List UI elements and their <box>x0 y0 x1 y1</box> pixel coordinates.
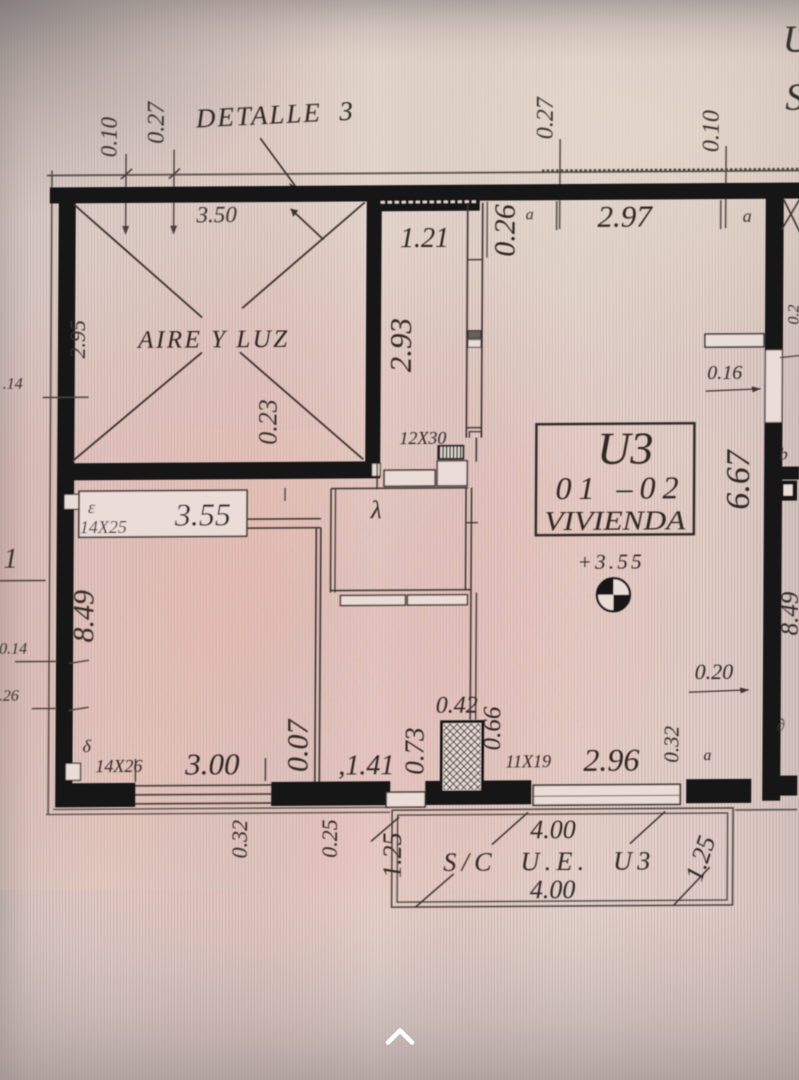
svg-text:U: U <box>783 18 799 60</box>
svg-text:λ: λ <box>370 497 382 524</box>
svg-text:6.67: 6.67 <box>720 448 757 510</box>
svg-text:ε: ε <box>88 497 96 517</box>
svg-text:VIVIENDA: VIVIENDA <box>544 505 686 536</box>
svg-text:0.23: 0.23 <box>253 399 282 445</box>
svg-text:0.07: 0.07 <box>281 717 314 772</box>
svg-text:0.10: 0.10 <box>699 110 725 152</box>
svg-text:4.00: 4.00 <box>530 815 576 844</box>
svg-text:0.73: 0.73 <box>400 727 430 774</box>
svg-text:δ: δ <box>82 736 91 756</box>
svg-text:0.25: 0.25 <box>317 819 342 858</box>
svg-text:,1.41: ,1.41 <box>338 750 394 781</box>
svg-text:2.95: 2.95 <box>65 320 90 359</box>
svg-text:0.32: 0.32 <box>659 725 683 762</box>
svg-text:11X19: 11X19 <box>505 751 551 771</box>
svg-text:∂: ∂ <box>777 716 786 735</box>
svg-text:a: a <box>703 747 711 764</box>
svg-text:b: b <box>779 445 788 464</box>
svg-text:a: a <box>526 206 534 223</box>
svg-text:4.00: 4.00 <box>530 875 576 904</box>
svg-text:3.00: 3.00 <box>184 746 240 781</box>
svg-text:AIRE Y LUZ: AIRE Y LUZ <box>136 326 290 354</box>
svg-text:8.49: 8.49 <box>67 590 100 643</box>
svg-text:U3: U3 <box>597 422 654 473</box>
svg-text:1: 1 <box>4 544 18 575</box>
svg-text:0.2: 0.2 <box>786 305 799 325</box>
svg-text:0.14: 0.14 <box>0 641 27 658</box>
svg-text:8.49: 8.49 <box>777 591 799 635</box>
svg-text:14X26: 14X26 <box>95 756 142 776</box>
svg-text:.14: .14 <box>3 376 23 393</box>
svg-text:2.97: 2.97 <box>597 198 653 233</box>
svg-text:0.32: 0.32 <box>227 820 252 859</box>
svg-text:0.42: 0.42 <box>436 693 478 719</box>
svg-text:2.96: 2.96 <box>583 742 639 778</box>
svg-text:0.20: 0.20 <box>695 659 734 684</box>
svg-text:0.16: 0.16 <box>707 362 742 384</box>
svg-text:3.50: 3.50 <box>196 202 238 227</box>
svg-text:1.21: 1.21 <box>400 223 449 254</box>
svg-text:0.27: 0.27 <box>144 101 170 144</box>
svg-text:+3.55: +3.55 <box>578 550 642 574</box>
svg-text:1.25: 1.25 <box>378 832 407 878</box>
svg-text:3.55: 3.55 <box>174 496 231 532</box>
svg-text:14X25: 14X25 <box>80 517 127 537</box>
svg-text:2.93: 2.93 <box>383 318 418 372</box>
svg-text:a: a <box>743 206 752 226</box>
svg-text:0.27: 0.27 <box>533 96 559 139</box>
svg-text:0.26: 0.26 <box>488 204 521 257</box>
svg-text:S: S <box>785 77 799 119</box>
svg-text:.26: .26 <box>0 688 19 705</box>
svg-text:S/C U.E. U3: S/C U.E. U3 <box>443 846 650 876</box>
svg-text:0.10: 0.10 <box>96 116 121 157</box>
